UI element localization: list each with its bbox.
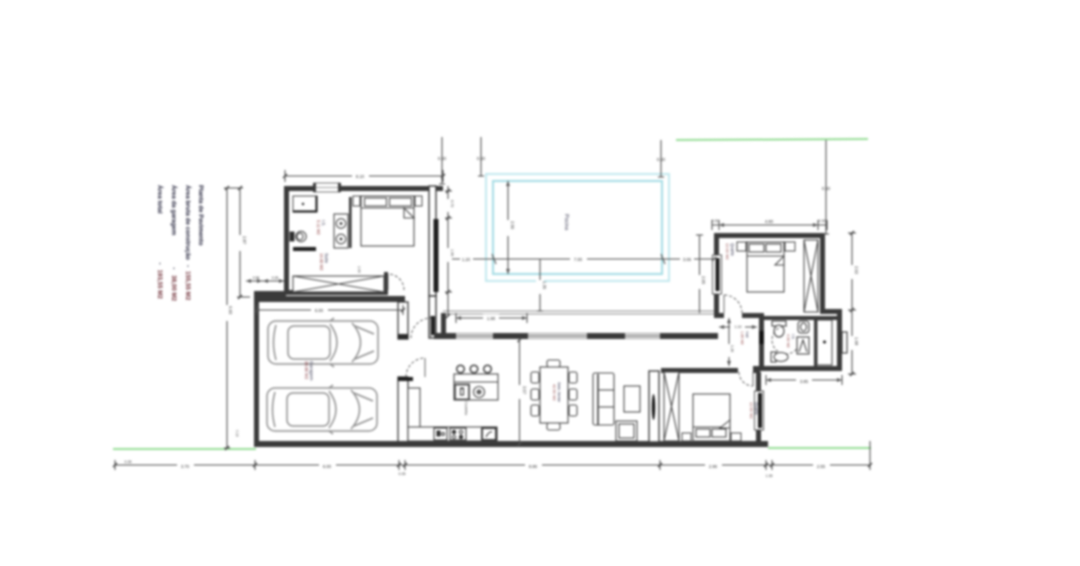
svg-text:0.60: 0.60	[657, 157, 666, 162]
svg-text:0.35: 0.35	[399, 472, 406, 476]
svg-text:Área total-193,55 M2: Área total-193,55 M2	[156, 185, 163, 299]
svg-text:2.02: 2.02	[854, 266, 859, 275]
svg-text:12.00 M2: 12.00 M2	[725, 243, 730, 260]
svg-text:5.11 M2: 5.11 M2	[316, 220, 321, 235]
svg-text:2.50: 2.50	[510, 221, 515, 230]
svg-text:2.05: 2.05	[701, 276, 706, 285]
svg-text:0.60: 0.60	[822, 186, 831, 191]
svg-text:6.00: 6.00	[323, 464, 332, 469]
svg-text:Área da garagem-38,00 M2: Área da garagem-38,00 M2	[170, 185, 177, 302]
svg-text:2.87: 2.87	[242, 236, 247, 245]
svg-text:1.90: 1.90	[450, 249, 454, 256]
svg-text:8.86: 8.86	[529, 464, 538, 469]
svg-text:1.35: 1.35	[542, 281, 547, 290]
svg-text:1.60: 1.60	[357, 266, 361, 273]
svg-text:16.00 M2: 16.00 M2	[319, 253, 324, 271]
svg-text:Cozinha: Cozinha	[464, 401, 468, 416]
svg-text:I.S.: I.S.	[791, 334, 795, 340]
svg-text:4.80: 4.80	[765, 219, 774, 224]
svg-text:0.35: 0.35	[272, 276, 279, 280]
svg-text:2.55: 2.55	[817, 464, 826, 469]
svg-text:0.13: 0.13	[235, 430, 239, 437]
svg-text:1.98: 1.98	[487, 316, 496, 321]
svg-text:1.28: 1.28	[730, 345, 734, 352]
svg-text:4.50 M2: 4.50 M2	[786, 334, 790, 348]
svg-text:3.57: 3.57	[522, 386, 527, 395]
svg-text:Área bruta de construção-155,5: Área bruta de construção-155,55 M2	[184, 185, 191, 301]
svg-text:1.85 M2: 1.85 M2	[740, 331, 744, 345]
svg-text:0.30: 0.30	[819, 219, 826, 223]
svg-text:0.30: 0.30	[712, 219, 719, 223]
svg-text:7.00: 7.00	[574, 257, 583, 262]
svg-text:Hall: Hall	[745, 331, 749, 338]
svg-text:1.10: 1.10	[735, 325, 742, 329]
svg-text:0.60: 0.60	[477, 156, 486, 161]
svg-text:3.06: 3.06	[683, 257, 692, 262]
svg-text:1.20: 1.20	[462, 257, 471, 262]
svg-text:Planta de Pavimento: Planta de Pavimento	[197, 185, 204, 246]
svg-text:0.98: 0.98	[253, 276, 260, 280]
svg-text:6.00: 6.00	[315, 308, 324, 313]
svg-text:0.72: 0.72	[450, 200, 454, 207]
svg-text:0.60: 0.60	[438, 156, 447, 161]
svg-text:8.10: 8.10	[356, 174, 365, 179]
svg-text:38.00 M2: 38.00 M2	[304, 361, 309, 380]
svg-text:6.93: 6.93	[228, 306, 233, 315]
svg-text:1.35: 1.35	[766, 474, 773, 478]
svg-text:0.35: 0.35	[125, 460, 132, 464]
svg-text:Piscina: Piscina	[563, 214, 569, 230]
svg-text:3.70: 3.70	[181, 464, 190, 469]
svg-text:42.50 M2: 42.50 M2	[552, 384, 557, 401]
svg-text:1.68: 1.68	[854, 337, 859, 346]
svg-text:2.96: 2.96	[709, 464, 718, 469]
svg-text:12.50 M2: 12.50 M2	[749, 402, 754, 419]
svg-text:3.85: 3.85	[800, 379, 809, 384]
